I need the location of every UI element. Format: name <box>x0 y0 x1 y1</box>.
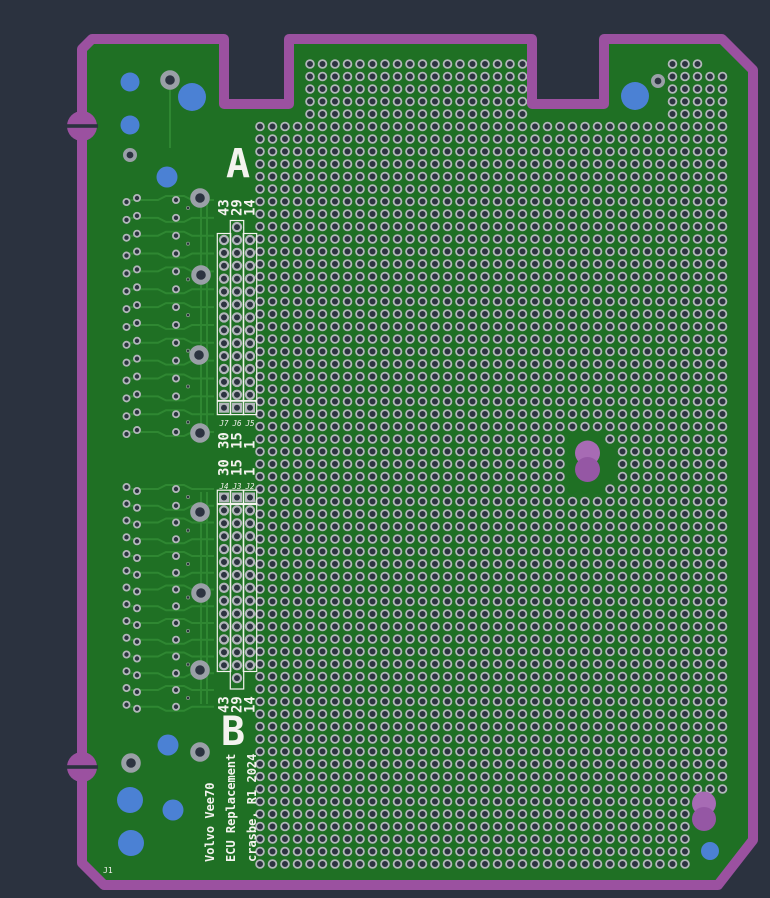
perfboard-pad[interactable] <box>581 848 589 856</box>
perfboard-pad[interactable] <box>531 623 539 631</box>
perfboard-pad[interactable] <box>394 510 402 518</box>
perfboard-pad[interactable] <box>356 498 364 506</box>
perfboard-pad[interactable] <box>356 235 364 243</box>
perfboard-pad[interactable] <box>669 435 677 443</box>
circuit-pad[interactable] <box>123 360 129 366</box>
perfboard-pad[interactable] <box>306 223 314 231</box>
perfboard-pad[interactable] <box>369 823 377 831</box>
perfboard-pad[interactable] <box>419 498 427 506</box>
perfboard-pad[interactable] <box>319 210 327 218</box>
micro-via[interactable] <box>186 596 189 599</box>
perfboard-pad[interactable] <box>544 660 552 668</box>
perfboard-pad[interactable] <box>544 585 552 593</box>
perfboard-pad[interactable] <box>431 98 439 106</box>
perfboard-pad[interactable] <box>369 598 377 606</box>
perfboard-pad[interactable] <box>431 298 439 306</box>
perfboard-pad[interactable] <box>481 210 489 218</box>
perfboard-pad[interactable] <box>306 298 314 306</box>
perfboard-pad[interactable] <box>494 248 502 256</box>
perfboard-pad[interactable] <box>556 360 564 368</box>
via-large[interactable] <box>193 505 208 520</box>
perfboard-pad[interactable] <box>581 335 589 343</box>
perfboard-pad[interactable] <box>644 535 652 543</box>
perfboard-pad[interactable] <box>319 460 327 468</box>
perfboard-pad[interactable] <box>656 623 664 631</box>
perfboard-pad[interactable] <box>644 648 652 656</box>
perfboard-pad[interactable] <box>306 698 314 706</box>
perfboard-pad[interactable] <box>381 510 389 518</box>
perfboard-pad[interactable] <box>694 635 702 643</box>
perfboard-pad[interactable] <box>394 698 402 706</box>
perfboard-pad[interactable] <box>719 573 727 581</box>
perfboard-pad[interactable] <box>694 673 702 681</box>
perfboard-pad[interactable] <box>481 698 489 706</box>
perfboard-pad[interactable] <box>369 610 377 618</box>
perfboard-pad[interactable] <box>394 410 402 418</box>
perfboard-pad[interactable] <box>619 273 627 281</box>
perfboard-pad[interactable] <box>344 360 352 368</box>
perfboard-pad[interactable] <box>319 60 327 68</box>
perfboard-pad[interactable] <box>581 785 589 793</box>
perfboard-pad[interactable] <box>306 360 314 368</box>
perfboard-pad[interactable] <box>544 448 552 456</box>
perfboard-pad[interactable] <box>294 248 302 256</box>
perfboard-pad[interactable] <box>606 335 614 343</box>
perfboard-pad[interactable] <box>394 785 402 793</box>
perfboard-pad[interactable] <box>606 273 614 281</box>
perfboard-pad[interactable] <box>331 273 339 281</box>
perfboard-pad[interactable] <box>656 123 664 131</box>
perfboard-pad[interactable] <box>406 710 414 718</box>
perfboard-pad[interactable] <box>569 260 577 268</box>
perfboard-pad[interactable] <box>331 423 339 431</box>
perfboard-pad[interactable] <box>431 573 439 581</box>
perfboard-pad[interactable] <box>381 335 389 343</box>
perfboard-pad[interactable] <box>394 710 402 718</box>
perfboard-pad[interactable] <box>381 535 389 543</box>
perfboard-pad[interactable] <box>706 510 714 518</box>
perfboard-pad[interactable] <box>269 123 277 131</box>
perfboard-pad[interactable] <box>569 423 577 431</box>
perfboard-pad[interactable] <box>294 273 302 281</box>
perfboard-pad[interactable] <box>719 210 727 218</box>
perfboard-pad[interactable] <box>456 98 464 106</box>
perfboard-pad[interactable] <box>631 548 639 556</box>
perfboard-pad[interactable] <box>256 160 264 168</box>
connector-pad[interactable] <box>233 236 241 244</box>
perfboard-pad[interactable] <box>369 535 377 543</box>
connector-pad-hole[interactable] <box>234 495 240 501</box>
perfboard-pad[interactable] <box>419 723 427 731</box>
drill-hole[interactable] <box>121 116 140 135</box>
perfboard-pad[interactable] <box>694 235 702 243</box>
perfboard-pad[interactable] <box>606 710 614 718</box>
perfboard-pad[interactable] <box>719 748 727 756</box>
perfboard-pad[interactable] <box>456 310 464 318</box>
perfboard-pad[interactable] <box>456 698 464 706</box>
perfboard-pad[interactable] <box>469 748 477 756</box>
perfboard-pad[interactable] <box>581 235 589 243</box>
perfboard-pad[interactable] <box>669 535 677 543</box>
perfboard-pad[interactable] <box>644 260 652 268</box>
perfboard-pad[interactable] <box>719 173 727 181</box>
perfboard-pad[interactable] <box>281 748 289 756</box>
perfboard-pad[interactable] <box>619 648 627 656</box>
perfboard-pad[interactable] <box>494 735 502 743</box>
perfboard-pad[interactable] <box>619 773 627 781</box>
perfboard-pad[interactable] <box>619 735 627 743</box>
perfboard-pad[interactable] <box>519 785 527 793</box>
perfboard-pad[interactable] <box>481 248 489 256</box>
perfboard-pad[interactable] <box>531 848 539 856</box>
perfboard-pad[interactable] <box>444 598 452 606</box>
perfboard-pad[interactable] <box>494 98 502 106</box>
micro-via[interactable] <box>186 421 189 424</box>
perfboard-pad[interactable] <box>419 773 427 781</box>
perfboard-pad[interactable] <box>669 485 677 493</box>
perfboard-pad[interactable] <box>444 398 452 406</box>
perfboard-pad[interactable] <box>644 410 652 418</box>
perfboard-pad[interactable] <box>506 298 514 306</box>
perfboard-pad[interactable] <box>356 185 364 193</box>
perfboard-pad[interactable] <box>294 623 302 631</box>
perfboard-pad[interactable] <box>556 498 564 506</box>
perfboard-pad[interactable] <box>706 123 714 131</box>
perfboard-pad[interactable] <box>469 335 477 343</box>
perfboard-pad[interactable] <box>394 623 402 631</box>
perfboard-pad[interactable] <box>306 810 314 818</box>
perfboard-pad[interactable] <box>319 698 327 706</box>
perfboard-pad[interactable] <box>331 585 339 593</box>
perfboard-pad[interactable] <box>431 685 439 693</box>
perfboard-pad[interactable] <box>681 298 689 306</box>
perfboard-pad[interactable] <box>319 335 327 343</box>
perfboard-pad[interactable] <box>681 598 689 606</box>
perfboard-pad[interactable] <box>281 260 289 268</box>
perfboard-pad[interactable] <box>331 648 339 656</box>
perfboard-pad[interactable] <box>469 510 477 518</box>
perfboard-pad[interactable] <box>631 585 639 593</box>
perfboard-pad[interactable] <box>369 548 377 556</box>
perfboard-pad[interactable] <box>394 673 402 681</box>
perfboard-pad[interactable] <box>406 523 414 531</box>
perfboard-pad[interactable] <box>556 698 564 706</box>
perfboard-pad[interactable] <box>681 348 689 356</box>
perfboard-pad[interactable] <box>306 373 314 381</box>
perfboard-pad[interactable] <box>356 448 364 456</box>
perfboard-pad[interactable] <box>544 860 552 868</box>
circuit-pad[interactable] <box>123 517 129 523</box>
perfboard-pad[interactable] <box>519 173 527 181</box>
perfboard-pad[interactable] <box>469 773 477 781</box>
perfboard-pad[interactable] <box>519 623 527 631</box>
perfboard-pad[interactable] <box>619 410 627 418</box>
perfboard-pad[interactable] <box>506 473 514 481</box>
perfboard-pad[interactable] <box>419 248 427 256</box>
perfboard-pad[interactable] <box>594 173 602 181</box>
perfboard-pad[interactable] <box>631 360 639 368</box>
perfboard-pad[interactable] <box>719 385 727 393</box>
perfboard-pad[interactable] <box>581 198 589 206</box>
perfboard-pad[interactable] <box>319 498 327 506</box>
perfboard-pad[interactable] <box>706 685 714 693</box>
perfboard-pad[interactable] <box>506 385 514 393</box>
perfboard-pad[interactable] <box>581 710 589 718</box>
perfboard-pad[interactable] <box>369 85 377 93</box>
perfboard-pad[interactable] <box>656 485 664 493</box>
perfboard-pad[interactable] <box>294 485 302 493</box>
perfboard-pad[interactable] <box>694 773 702 781</box>
perfboard-pad[interactable] <box>619 435 627 443</box>
perfboard-pad[interactable] <box>394 560 402 568</box>
perfboard-pad[interactable] <box>331 173 339 181</box>
perfboard-pad[interactable] <box>469 535 477 543</box>
perfboard-pad[interactable] <box>306 760 314 768</box>
perfboard-pad[interactable] <box>594 760 602 768</box>
connector-pad[interactable] <box>233 352 241 360</box>
perfboard-pad[interactable] <box>619 585 627 593</box>
perfboard-pad[interactable] <box>544 235 552 243</box>
circuit-pad[interactable] <box>173 653 179 659</box>
perfboard-pad[interactable] <box>719 448 727 456</box>
perfboard-pad[interactable] <box>594 748 602 756</box>
connector-pad[interactable] <box>246 648 254 656</box>
perfboard-pad[interactable] <box>681 235 689 243</box>
perfboard-pad[interactable] <box>569 135 577 143</box>
perfboard-pad[interactable] <box>294 760 302 768</box>
perfboard-pad[interactable] <box>294 298 302 306</box>
perfboard-pad[interactable] <box>594 385 602 393</box>
perfboard-pad[interactable] <box>481 98 489 106</box>
perfboard-pad[interactable] <box>281 160 289 168</box>
perfboard-pad[interactable] <box>544 148 552 156</box>
perfboard-pad[interactable] <box>519 498 527 506</box>
perfboard-pad[interactable] <box>556 735 564 743</box>
perfboard-pad[interactable] <box>381 610 389 618</box>
perfboard-pad[interactable] <box>694 360 702 368</box>
perfboard-pad[interactable] <box>369 135 377 143</box>
perfboard-pad[interactable] <box>494 460 502 468</box>
perfboard-pad[interactable] <box>619 260 627 268</box>
perfboard-pad[interactable] <box>406 798 414 806</box>
perfboard-pad[interactable] <box>694 598 702 606</box>
perfboard-pad[interactable] <box>456 510 464 518</box>
perfboard-pad[interactable] <box>544 185 552 193</box>
perfboard-pad[interactable] <box>319 398 327 406</box>
perfboard-pad[interactable] <box>419 348 427 356</box>
perfboard-pad[interactable] <box>581 573 589 581</box>
perfboard-pad[interactable] <box>581 585 589 593</box>
perfboard-pad[interactable] <box>406 248 414 256</box>
perfboard-pad[interactable] <box>506 760 514 768</box>
perfboard-pad[interactable] <box>444 610 452 618</box>
perfboard-pad[interactable] <box>331 510 339 518</box>
perfboard-pad[interactable] <box>406 860 414 868</box>
perfboard-pad[interactable] <box>519 860 527 868</box>
circuit-pad[interactable] <box>173 670 179 676</box>
perfboard-pad[interactable] <box>319 810 327 818</box>
perfboard-pad[interactable] <box>456 285 464 293</box>
perfboard-pad[interactable] <box>481 860 489 868</box>
perfboard-pad[interactable] <box>419 423 427 431</box>
perfboard-pad[interactable] <box>631 410 639 418</box>
perfboard-pad[interactable] <box>444 98 452 106</box>
perfboard-pad[interactable] <box>631 373 639 381</box>
perfboard-pad[interactable] <box>669 560 677 568</box>
perfboard-pad[interactable] <box>394 173 402 181</box>
perfboard-pad[interactable] <box>556 598 564 606</box>
perfboard-pad[interactable] <box>631 660 639 668</box>
perfboard-pad[interactable] <box>706 185 714 193</box>
perfboard-pad[interactable] <box>644 373 652 381</box>
perfboard-pad[interactable] <box>606 498 614 506</box>
perfboard-pad[interactable] <box>669 160 677 168</box>
perfboard-pad[interactable] <box>544 823 552 831</box>
perfboard-pad[interactable] <box>581 660 589 668</box>
micro-via[interactable] <box>186 278 189 281</box>
perfboard-pad[interactable] <box>344 748 352 756</box>
perfboard-pad[interactable] <box>281 598 289 606</box>
perfboard-pad[interactable] <box>506 98 514 106</box>
perfboard-pad[interactable] <box>344 423 352 431</box>
perfboard-pad[interactable] <box>319 685 327 693</box>
perfboard-pad[interactable] <box>644 860 652 868</box>
perfboard-pad[interactable] <box>494 123 502 131</box>
perfboard-pad[interactable] <box>556 410 564 418</box>
perfboard-pad[interactable] <box>719 498 727 506</box>
perfboard-pad[interactable] <box>406 73 414 81</box>
perfboard-pad[interactable] <box>306 623 314 631</box>
perfboard-pad[interactable] <box>481 460 489 468</box>
perfboard-pad[interactable] <box>544 698 552 706</box>
perfboard-pad[interactable] <box>319 823 327 831</box>
perfboard-pad[interactable] <box>381 173 389 181</box>
perfboard-pad[interactable] <box>456 735 464 743</box>
perfboard-pad[interactable] <box>444 723 452 731</box>
perfboard-pad[interactable] <box>381 273 389 281</box>
perfboard-pad[interactable] <box>606 810 614 818</box>
perfboard-pad[interactable] <box>531 648 539 656</box>
perfboard-pad[interactable] <box>406 373 414 381</box>
perfboard-pad[interactable] <box>669 60 677 68</box>
perfboard-pad[interactable] <box>394 860 402 868</box>
perfboard-pad[interactable] <box>644 585 652 593</box>
perfboard-pad[interactable] <box>256 135 264 143</box>
circuit-pad[interactable] <box>173 340 179 346</box>
perfboard-pad[interactable] <box>469 635 477 643</box>
perfboard-pad[interactable] <box>606 535 614 543</box>
perfboard-pad[interactable] <box>544 835 552 843</box>
perfboard-pad[interactable] <box>619 298 627 306</box>
perfboard-pad[interactable] <box>631 235 639 243</box>
perfboard-pad[interactable] <box>494 198 502 206</box>
perfboard-pad[interactable] <box>294 498 302 506</box>
perfboard-pad[interactable] <box>369 848 377 856</box>
perfboard-pad[interactable] <box>569 348 577 356</box>
perfboard-pad[interactable] <box>506 848 514 856</box>
perfboard-pad[interactable] <box>281 485 289 493</box>
perfboard-pad[interactable] <box>506 810 514 818</box>
perfboard-pad[interactable] <box>431 823 439 831</box>
perfboard-pad[interactable] <box>319 323 327 331</box>
perfboard-pad[interactable] <box>506 423 514 431</box>
perfboard-pad[interactable] <box>619 498 627 506</box>
connector-pad[interactable] <box>246 352 254 360</box>
perfboard-pad[interactable] <box>444 823 452 831</box>
perfboard-pad[interactable] <box>694 385 702 393</box>
perfboard-pad[interactable] <box>469 160 477 168</box>
perfboard-pad[interactable] <box>381 473 389 481</box>
perfboard-pad[interactable] <box>431 660 439 668</box>
connector-pad[interactable] <box>246 300 254 308</box>
perfboard-pad[interactable] <box>606 348 614 356</box>
perfboard-pad[interactable] <box>606 298 614 306</box>
perfboard-pad[interactable] <box>531 760 539 768</box>
perfboard-pad[interactable] <box>494 423 502 431</box>
perfboard-pad[interactable] <box>481 585 489 593</box>
perfboard-pad[interactable] <box>631 123 639 131</box>
perfboard-pad[interactable] <box>306 335 314 343</box>
connector-pad[interactable] <box>220 249 228 257</box>
perfboard-pad[interactable] <box>531 748 539 756</box>
perfboard-pad[interactable] <box>419 235 427 243</box>
perfboard-pad[interactable] <box>531 223 539 231</box>
perfboard-pad[interactable] <box>631 448 639 456</box>
perfboard-pad[interactable] <box>469 260 477 268</box>
perfboard-pad[interactable] <box>519 160 527 168</box>
perfboard-pad[interactable] <box>719 310 727 318</box>
perfboard-pad[interactable] <box>494 335 502 343</box>
connector-pad[interactable] <box>246 275 254 283</box>
perfboard-pad[interactable] <box>419 660 427 668</box>
perfboard-pad[interactable] <box>656 535 664 543</box>
perfboard-pad[interactable] <box>619 823 627 831</box>
perfboard-pad[interactable] <box>569 185 577 193</box>
perfboard-pad[interactable] <box>406 485 414 493</box>
perfboard-pad[interactable] <box>594 198 602 206</box>
perfboard-pad[interactable] <box>581 560 589 568</box>
perfboard-pad[interactable] <box>294 660 302 668</box>
perfboard-pad[interactable] <box>519 685 527 693</box>
perfboard-pad[interactable] <box>369 685 377 693</box>
perfboard-pad[interactable] <box>719 510 727 518</box>
perfboard-pad[interactable] <box>369 435 377 443</box>
perfboard-pad[interactable] <box>444 335 452 343</box>
perfboard-pad[interactable] <box>369 310 377 318</box>
perfboard-pad[interactable] <box>619 848 627 856</box>
perfboard-pad[interactable] <box>281 723 289 731</box>
circuit-pad[interactable] <box>123 635 129 641</box>
perfboard-pad[interactable] <box>356 423 364 431</box>
perfboard-pad[interactable] <box>331 398 339 406</box>
perfboard-pad[interactable] <box>681 698 689 706</box>
connector-pad[interactable] <box>246 635 254 643</box>
connector-pad-hole[interactable] <box>247 495 253 501</box>
perfboard-pad[interactable] <box>469 785 477 793</box>
circuit-pad[interactable] <box>123 685 129 691</box>
perfboard-pad[interactable] <box>656 135 664 143</box>
perfboard-pad[interactable] <box>431 148 439 156</box>
perfboard-pad[interactable] <box>269 660 277 668</box>
perfboard-pad[interactable] <box>381 435 389 443</box>
perfboard-pad[interactable] <box>394 548 402 556</box>
perfboard-pad[interactable] <box>356 360 364 368</box>
perfboard-pad[interactable] <box>369 835 377 843</box>
perfboard-pad[interactable] <box>581 635 589 643</box>
perfboard-pad[interactable] <box>644 423 652 431</box>
perfboard-pad[interactable] <box>431 723 439 731</box>
perfboard-pad[interactable] <box>431 285 439 293</box>
